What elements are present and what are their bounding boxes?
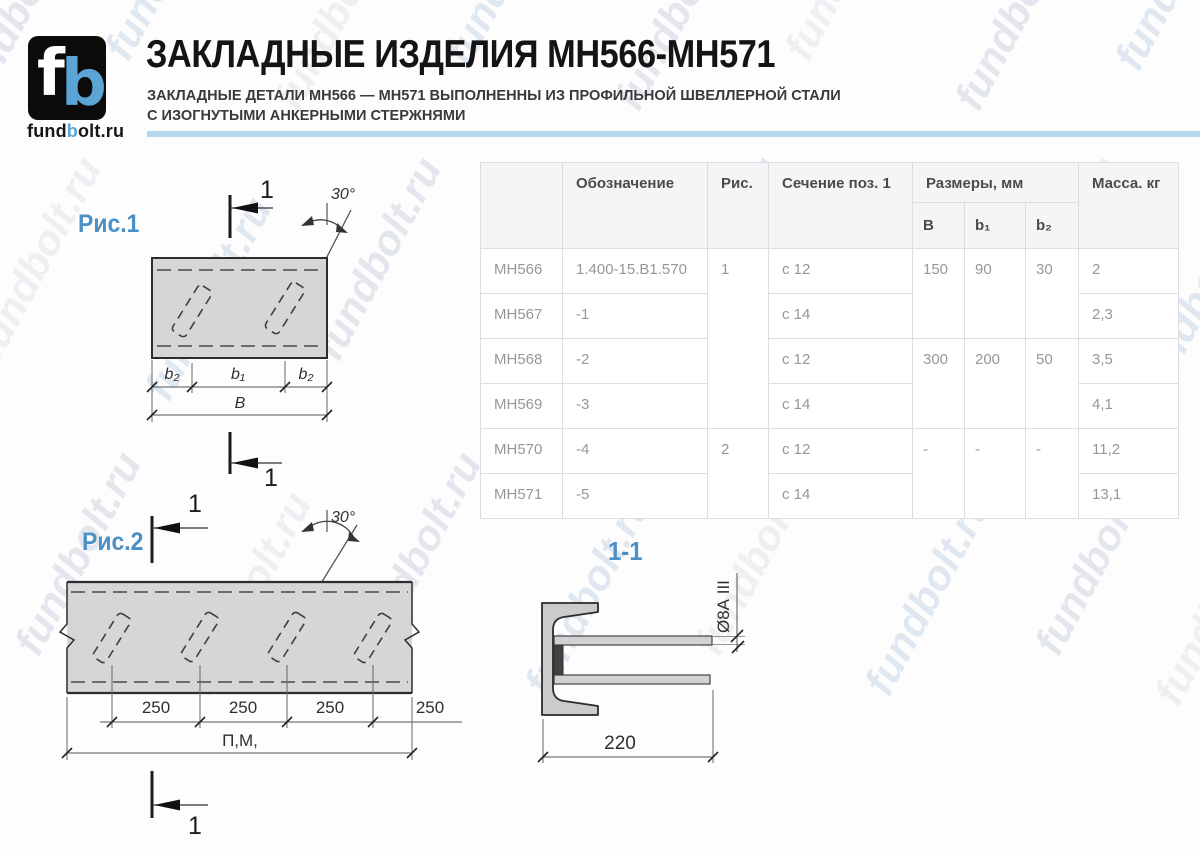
- watermark-text: fundbolt.ru: [775, 0, 921, 68]
- page-subtitle-line1: ЗАКЛАДНЫЕ ДЕТАЛИ МН566 — МН571 ВЫПОЛНЕНН…: [147, 86, 841, 106]
- site-name-part1: fund: [27, 121, 67, 141]
- cell-designation: -3: [563, 384, 708, 429]
- section-view-drawing: Ø8А III 220: [500, 530, 800, 780]
- col-header-b: В: [913, 203, 965, 249]
- anchor-rod-bend: [554, 645, 563, 675]
- logo-b-letter: b: [61, 52, 107, 116]
- section-cut-mark-icon: 1: [152, 490, 208, 563]
- channel-profile: [542, 603, 598, 715]
- cell-name: МН568: [481, 339, 563, 384]
- cell-designation: -4: [563, 429, 708, 474]
- cell-mass: 4,1: [1079, 384, 1179, 429]
- plate-body: [152, 258, 327, 358]
- cell-mass: 3,5: [1079, 339, 1179, 384]
- cell-designation: -2: [563, 339, 708, 384]
- col-header-mass: Масса. кг: [1079, 163, 1179, 249]
- figure2-drawing: 1 1 30°: [40, 430, 470, 840]
- site-logo[interactable]: f b: [28, 36, 106, 120]
- cell-b: 300: [913, 339, 965, 429]
- cell-section: с 14: [769, 294, 913, 339]
- cell-b: -: [913, 429, 965, 519]
- watermark-text: fundbolt.ru: [1105, 0, 1200, 78]
- dim-b2-right: b₂: [299, 366, 314, 383]
- page-title: ЗАКЛАДНЫЕ ИЗДЕЛИЯ МН566-МН571: [146, 33, 775, 77]
- page-subtitle: ЗАКЛАДНЫЕ ДЕТАЛИ МН566 — МН571 ВЫПОЛНЕНН…: [147, 86, 841, 126]
- dim-250: 250: [142, 698, 170, 717]
- dim-250: 250: [316, 698, 344, 717]
- cell-section: с 14: [769, 474, 913, 519]
- cell-b2: 50: [1026, 339, 1079, 429]
- section-cut-number: 1: [260, 176, 274, 204]
- table-row-mh566: МН566 1.400-15.В1.570 1 с 12 150 90 30 2: [481, 249, 1179, 294]
- cell-b: 150: [913, 249, 965, 339]
- cell-name: МН571: [481, 474, 563, 519]
- cell-section: с 14: [769, 384, 913, 429]
- anchor-rod-lower: [554, 675, 710, 684]
- col-header-sizes: Размеры, мм: [913, 163, 1079, 203]
- section-cut-number: 1: [188, 812, 202, 840]
- col-header-section: Сечение поз. 1: [769, 163, 913, 249]
- site-name-part2: b: [67, 121, 78, 141]
- col-header-designation: Обозначение: [563, 163, 708, 249]
- section-cut-number: 1: [264, 464, 278, 492]
- col-header-empty: [481, 163, 563, 249]
- cell-section: с 12: [769, 429, 913, 474]
- cell-designation: -1: [563, 294, 708, 339]
- spec-table-wrap: Обозначение Рис. Сечение поз. 1 Размеры,…: [480, 162, 1179, 519]
- cell-mass: 11,2: [1079, 429, 1179, 474]
- page-root: fundbolt.ru fundbolt.ru fundbolt.ru fund…: [0, 0, 1200, 850]
- dim-B: В: [235, 395, 246, 412]
- cell-mass: 2: [1079, 249, 1179, 294]
- dim-total-pm: П,М,: [222, 731, 258, 750]
- page-subtitle-line2: С ИЗОГНУТЫМИ АНКЕРНЫМИ СТЕРЖНЯМИ: [147, 106, 841, 126]
- anchor-rod-upper: [554, 636, 712, 645]
- cell-mass: 13,1: [1079, 474, 1179, 519]
- strip-body: [67, 582, 412, 693]
- rod-diameter-label: Ø8А III: [714, 580, 733, 633]
- table-header-row: Обозначение Рис. Сечение поз. 1 Размеры,…: [481, 163, 1179, 203]
- cell-b1: 90: [965, 249, 1026, 339]
- cell-name: МН567: [481, 294, 563, 339]
- figure1-drawing: 1 30°: [60, 165, 430, 435]
- spec-table: Обозначение Рис. Сечение поз. 1 Размеры,…: [480, 162, 1179, 519]
- col-header-b1: b₁: [965, 203, 1026, 249]
- angle-value: 30°: [331, 186, 356, 203]
- site-name: fundbolt.ru: [27, 121, 124, 142]
- cell-name: МН569: [481, 384, 563, 429]
- watermark-text: fundbolt.ru: [945, 0, 1091, 118]
- col-header-fig: Рис.: [708, 163, 769, 249]
- table-row-mh568: МН568 -2 с 12 300 200 50 3,5: [481, 339, 1179, 384]
- cell-b2: -: [1026, 429, 1079, 519]
- dim-b2-left: b₂: [165, 366, 180, 383]
- dim-250: 250: [416, 698, 444, 717]
- cell-b1: -: [965, 429, 1026, 519]
- cell-b2: 30: [1026, 249, 1079, 339]
- accent-divider: [147, 131, 1200, 137]
- cell-designation: -5: [563, 474, 708, 519]
- section-cut-mark-icon: 1: [230, 176, 274, 238]
- col-header-b2: b₂: [1026, 203, 1079, 249]
- section-cut-mark-icon: 1: [230, 432, 282, 492]
- cell-section: с 12: [769, 339, 913, 384]
- site-name-part3: olt.ru: [78, 121, 124, 141]
- section-cut-mark-icon: 1: [152, 771, 208, 840]
- cell-name: МН570: [481, 429, 563, 474]
- cell-section: с 12: [769, 249, 913, 294]
- cell-fig: 2: [708, 429, 769, 519]
- dim-b1: b₁: [231, 366, 245, 383]
- table-row-mh570: МН570 -4 2 с 12 - - - 11,2: [481, 429, 1179, 474]
- rod-diameter-leader: Ø8А III: [712, 573, 745, 653]
- angle-value: 30°: [331, 509, 356, 526]
- cell-b1: 200: [965, 339, 1026, 429]
- cell-name: МН566: [481, 249, 563, 294]
- cell-fig: 1: [708, 249, 769, 429]
- cell-designation: 1.400-15.В1.570: [563, 249, 708, 294]
- section-cut-number: 1: [188, 490, 202, 518]
- cell-mass: 2,3: [1079, 294, 1179, 339]
- watermark-text: fundbolt.ru: [1145, 494, 1200, 712]
- dim-220: 220: [604, 733, 636, 754]
- dim-250: 250: [229, 698, 257, 717]
